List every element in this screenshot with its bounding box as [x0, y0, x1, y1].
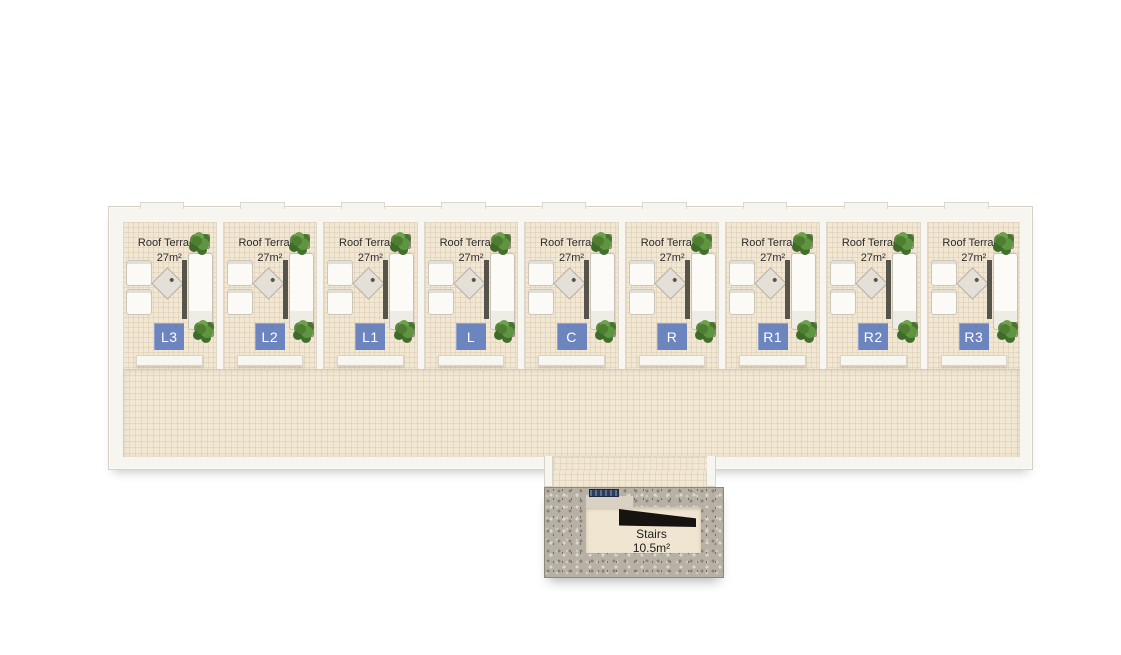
armchair-icon	[428, 289, 454, 315]
parapet-cap	[844, 202, 888, 209]
armchair-icon	[629, 260, 655, 286]
unit-code-badge: R3	[959, 323, 989, 350]
armchair-icon	[830, 289, 856, 315]
plant-icon	[493, 236, 505, 248]
coffee-table-icon	[352, 267, 385, 300]
unit-parapet-wall	[538, 355, 605, 366]
unit-partition-wall	[618, 222, 626, 369]
unit-parapet-wall	[136, 355, 203, 366]
unit-C: Roof Terrace 27m² C	[525, 222, 618, 369]
sofa-back-icon	[987, 260, 992, 319]
passage-wall-right	[706, 456, 716, 487]
coffee-table-icon	[252, 267, 285, 300]
unit-code-badge: L3	[154, 323, 184, 350]
plant-leaves-icon	[799, 324, 809, 334]
plant-leaves-icon	[900, 324, 910, 334]
unit-code-badge: C	[557, 323, 587, 350]
stairs-passage-opening	[554, 457, 707, 471]
unit-L2: Roof Terrace 27m² L2	[224, 222, 317, 369]
unit-partition-wall	[920, 222, 928, 369]
plant-icon	[192, 236, 204, 248]
armchair-icon	[327, 289, 353, 315]
unit-parapet-wall	[840, 355, 907, 366]
lounger-icon	[289, 253, 314, 330]
armchair-icon	[729, 289, 755, 315]
parapet-cap	[140, 202, 184, 209]
unit-partition-wall	[316, 222, 324, 369]
plant-leaves-icon	[397, 324, 407, 334]
armchair-icon	[528, 260, 554, 286]
plant-leaves-icon	[795, 236, 805, 246]
armchair-icon	[830, 260, 856, 286]
sofa-back-icon	[785, 260, 790, 319]
parapet-cap	[441, 202, 485, 209]
plant-icon	[497, 324, 509, 336]
common-roof-terrace	[123, 369, 1020, 457]
coffee-table-icon	[855, 267, 888, 300]
stair-flight-icon	[619, 509, 696, 527]
plant-icon	[296, 324, 308, 336]
plant-icon	[292, 236, 304, 248]
unit-partition-wall	[718, 222, 726, 369]
sofa-back-icon	[886, 260, 891, 319]
unit-code-badge: R	[657, 323, 687, 350]
lounger-icon	[490, 253, 515, 330]
unit-R2: Roof Terrace 27m² R2	[827, 222, 920, 369]
armchair-icon	[327, 260, 353, 286]
armchair-icon	[126, 289, 152, 315]
sofa-back-icon	[484, 260, 489, 319]
unit-code-badge: L1	[355, 323, 385, 350]
plant-icon	[698, 324, 710, 336]
lounger-icon	[590, 253, 615, 330]
plant-icon	[397, 324, 409, 336]
plant-leaves-icon	[996, 236, 1006, 246]
unit-L3: Roof Terrace 27m² L3	[123, 222, 216, 369]
lounger-icon	[892, 253, 917, 330]
armchair-icon	[629, 289, 655, 315]
unit-R: Roof Terrace 27m² R	[626, 222, 719, 369]
plant-icon	[795, 236, 807, 248]
parapet-cap	[341, 202, 385, 209]
plant-icon	[1000, 324, 1012, 336]
building-plan: Roof Terrace 27m² L3 Roof Terrace 27m²	[108, 206, 1033, 470]
parapet-cap	[240, 202, 284, 209]
unit-L: Roof Terrace 27m² L	[425, 222, 518, 369]
sofa-back-icon	[283, 260, 288, 319]
unit-partition-wall	[819, 222, 827, 369]
lounger-icon	[389, 253, 414, 330]
parapet-cap	[743, 202, 787, 209]
unit-partition-wall	[417, 222, 425, 369]
stairs-area: 10.5m²	[602, 541, 701, 555]
stairs-name: Stairs	[602, 527, 701, 541]
unit-code-badge: R2	[858, 323, 888, 350]
plant-leaves-icon	[896, 236, 906, 246]
lounger-icon	[188, 253, 213, 330]
units-row: Roof Terrace 27m² L3 Roof Terrace 27m²	[123, 222, 1020, 369]
parapet-cap	[542, 202, 586, 209]
unit-L1: Roof Terrace 27m² L1	[324, 222, 417, 369]
sofa-back-icon	[182, 260, 187, 319]
lounger-icon	[791, 253, 816, 330]
parapet-cap	[944, 202, 988, 209]
plant-icon	[900, 324, 912, 336]
plant-icon	[896, 236, 908, 248]
unit-partition-wall	[216, 222, 224, 369]
coffee-table-icon	[755, 267, 788, 300]
plant-icon	[694, 236, 706, 248]
passage-wall-left	[544, 456, 553, 487]
stairwell-block: Stairs 10.5m²	[544, 487, 724, 578]
plant-icon	[196, 324, 208, 336]
armchair-icon	[528, 289, 554, 315]
armchair-icon	[227, 289, 253, 315]
plant-icon	[996, 236, 1008, 248]
sofa-back-icon	[685, 260, 690, 319]
unit-parapet-wall	[337, 355, 404, 366]
unit-parapet-wall	[739, 355, 806, 366]
coffee-table-icon	[151, 267, 184, 300]
armchair-icon	[729, 260, 755, 286]
plant-icon	[393, 236, 405, 248]
lounger-icon	[993, 253, 1018, 330]
floorplan-canvas: Roof Terrace 27m² L3 Roof Terrace 27m²	[0, 0, 1121, 655]
plant-leaves-icon	[192, 236, 202, 246]
stairwell-interior: Stairs 10.5m²	[586, 507, 701, 553]
coffee-table-icon	[453, 267, 486, 300]
doormat-icon	[589, 489, 619, 497]
plant-leaves-icon	[1000, 324, 1010, 334]
unit-R1: Roof Terrace 27m² R1	[726, 222, 819, 369]
armchair-icon	[428, 260, 454, 286]
plant-icon	[594, 236, 606, 248]
unit-partition-wall	[517, 222, 525, 369]
plant-icon	[799, 324, 811, 336]
sofa-back-icon	[383, 260, 388, 319]
coffee-table-icon	[654, 267, 687, 300]
unit-code-badge: L2	[255, 323, 285, 350]
plant-leaves-icon	[393, 236, 403, 246]
stairs-label: Stairs 10.5m²	[586, 527, 701, 555]
unit-parapet-wall	[639, 355, 706, 366]
plant-icon	[598, 324, 610, 336]
plant-leaves-icon	[196, 324, 206, 334]
armchair-icon	[126, 260, 152, 286]
plant-leaves-icon	[594, 236, 604, 246]
lounger-icon	[691, 253, 716, 330]
unit-parapet-wall	[237, 355, 304, 366]
unit-parapet-wall	[438, 355, 505, 366]
armchair-icon	[931, 260, 957, 286]
coffee-table-icon	[956, 267, 989, 300]
unit-code-badge: R1	[758, 323, 788, 350]
unit-parapet-wall	[941, 355, 1008, 366]
unit-R3: Roof Terrace 27m² R3	[928, 222, 1021, 369]
parapet-cap	[642, 202, 686, 209]
sofa-back-icon	[584, 260, 589, 319]
plant-leaves-icon	[598, 324, 608, 334]
coffee-table-icon	[553, 267, 586, 300]
stairs-landing	[586, 496, 633, 508]
armchair-icon	[227, 260, 253, 286]
unit-code-badge: L	[456, 323, 486, 350]
armchair-icon	[931, 289, 957, 315]
